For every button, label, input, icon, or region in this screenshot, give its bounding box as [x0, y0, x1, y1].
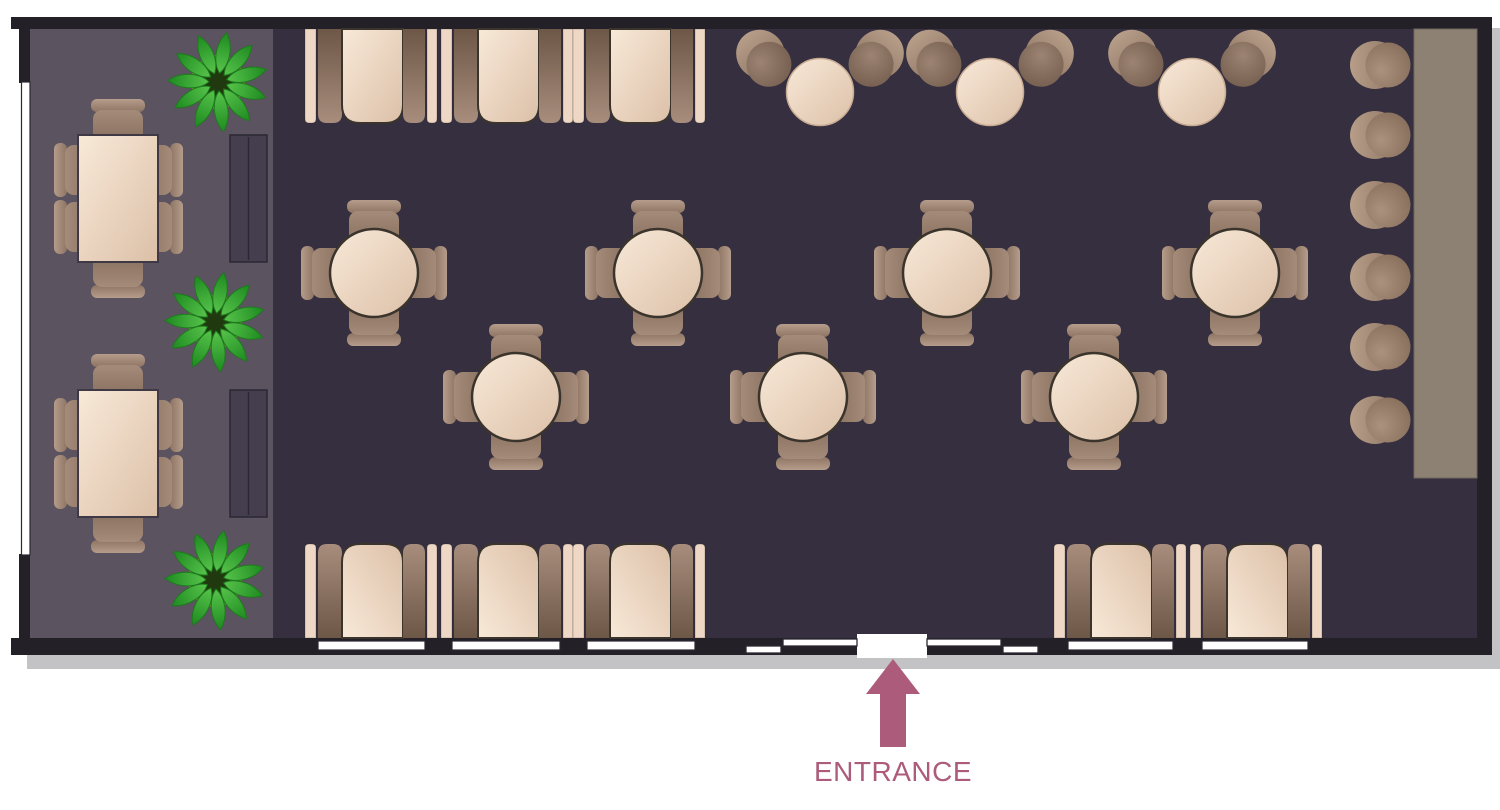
bench-backrest: [695, 29, 705, 123]
booth-up: [305, 544, 437, 638]
window-glass: [318, 641, 425, 650]
bottom-wall-window: [1068, 641, 1173, 650]
bar-counter: [1414, 29, 1477, 478]
bench-backrest: [573, 544, 584, 638]
table-top: [78, 390, 158, 517]
booth-up: [1190, 544, 1322, 638]
bar-stool: [1350, 323, 1411, 371]
tub-chair-seat: [1366, 255, 1411, 300]
floor-plan-svg: ENTRANCE: [0, 0, 1500, 810]
window-glass: [452, 641, 560, 650]
booth-down: [573, 29, 705, 123]
bench-seat: [1288, 544, 1310, 638]
bench-seat: [403, 544, 425, 638]
sofa-bench: [230, 135, 267, 262]
floor-plan-canvas: ENTRANCE: [0, 0, 1500, 810]
bottom-wall-window: [1202, 641, 1308, 650]
entrance-opening: [857, 634, 927, 658]
bench-backrest: [563, 544, 573, 638]
window-glass: [1068, 641, 1173, 650]
sofa-bench: [230, 390, 267, 517]
cafe-table-top: [787, 59, 854, 126]
wall-segment: [11, 17, 1492, 29]
bench-seat: [1067, 544, 1091, 638]
table-top: [330, 229, 418, 317]
table-top: [472, 353, 560, 441]
bench-seat: [318, 544, 342, 638]
bench-backrest: [1054, 544, 1065, 638]
bottom-wall-window: [318, 641, 425, 650]
bench-backrest: [441, 544, 452, 638]
booth-table: [342, 544, 403, 638]
bench-seat: [539, 29, 561, 123]
booth-table: [478, 544, 539, 638]
bench-seat: [671, 29, 693, 123]
bench-backrest: [695, 544, 705, 638]
bench-seat: [586, 29, 610, 123]
table-top: [903, 229, 991, 317]
bench-seat: [586, 544, 610, 638]
table-top: [759, 353, 847, 441]
bench-backrest: [427, 544, 437, 638]
bottom-wall-window: [587, 641, 695, 650]
bench-backrest: [427, 29, 437, 123]
tub-chair-seat: [1366, 43, 1411, 88]
booth-table: [610, 29, 671, 123]
booth-down: [441, 29, 573, 123]
bar-stool: [1350, 41, 1411, 89]
bench-backrest: [305, 29, 316, 123]
bench-backrest: [305, 544, 316, 638]
bench-seat: [403, 29, 425, 123]
tub-chair-seat: [1366, 183, 1411, 228]
table-top: [1191, 229, 1279, 317]
bench-seat: [1152, 544, 1174, 638]
bench-backrest: [1190, 544, 1201, 638]
entrance-arrow-icon: [866, 659, 920, 747]
bench-seat: [1203, 544, 1227, 638]
bench-backrest: [573, 29, 584, 123]
sliding-door-panel: [1003, 646, 1038, 653]
booth-up: [573, 544, 705, 638]
bench-seat: [671, 544, 693, 638]
table-top: [78, 135, 158, 262]
cafe-table-top: [1159, 59, 1226, 126]
booth-up: [1054, 544, 1186, 638]
entrance-label: ENTRANCE: [814, 756, 972, 787]
booth-table: [610, 544, 671, 638]
bar-stool: [1350, 111, 1411, 159]
table-top: [1050, 353, 1138, 441]
window-glass: [1202, 641, 1308, 650]
bench-backrest: [563, 29, 573, 123]
booth-down: [305, 29, 437, 123]
left-wall-window: [22, 82, 31, 555]
cafe-table-top: [957, 59, 1024, 126]
bar-stool: [1350, 181, 1411, 229]
tub-chair-seat: [1366, 398, 1411, 443]
booth-table: [1227, 544, 1288, 638]
tub-chair-seat: [1366, 113, 1411, 158]
entrance-annotation: ENTRANCE: [814, 659, 972, 787]
window-glass: [587, 641, 695, 650]
booth-up: [441, 544, 573, 638]
booth-table: [1091, 544, 1152, 638]
booth-table: [478, 29, 539, 123]
sliding-door-panel: [927, 639, 1001, 646]
tub-chair-seat: [1366, 325, 1411, 370]
floor-plan-scene: [11, 17, 1500, 669]
bar-stool: [1350, 253, 1411, 301]
bench-seat: [318, 29, 342, 123]
bench-backrest: [1312, 544, 1322, 638]
bottom-wall-window: [452, 641, 560, 650]
sliding-door-panel: [783, 639, 857, 646]
bench-seat: [539, 544, 561, 638]
booth-table: [342, 29, 403, 123]
bench-backrest: [441, 29, 452, 123]
wall-segment: [1477, 17, 1492, 655]
table-top: [614, 229, 702, 317]
bench-seat: [454, 544, 478, 638]
bench-seat: [454, 29, 478, 123]
bar-stool: [1350, 396, 1411, 444]
sliding-door-panel: [746, 646, 781, 653]
bench-backrest: [1176, 544, 1186, 638]
